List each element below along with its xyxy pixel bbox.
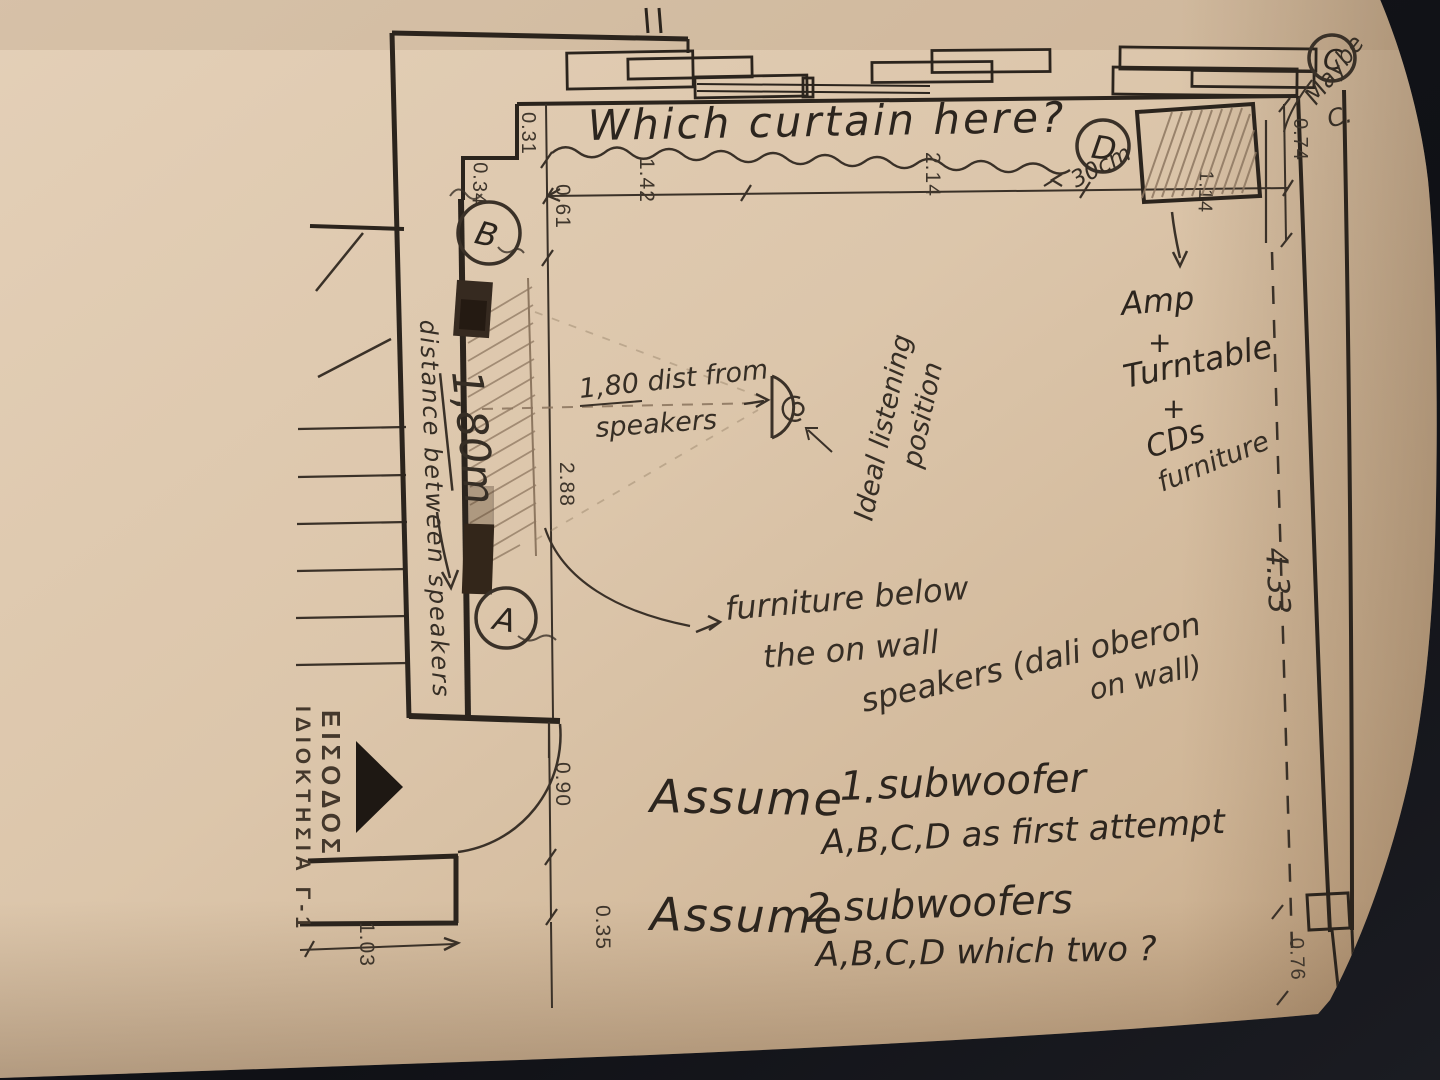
dim-0-90: 0.90 xyxy=(551,762,574,807)
dim-0-35: 0.35 xyxy=(591,905,614,950)
dim-0-76: 0.76 xyxy=(1285,937,1308,981)
assume2-qty: 2 subwoofers xyxy=(805,877,1074,932)
dim-2-14: 2.14 xyxy=(921,152,944,197)
dim-0-61: 0.61 xyxy=(551,184,574,229)
dim-1-03: 1.03 xyxy=(355,922,378,967)
dim-2-88: 2.88 xyxy=(555,462,578,507)
dim-4-33: 4.33 xyxy=(1258,547,1296,616)
entrance-label-1: ΕΙΣΟΔΟΣ xyxy=(316,710,346,859)
speaker-bottom xyxy=(462,523,494,594)
dim-1-42: 1.42 xyxy=(635,158,658,203)
assume2-detail: A,B,C,D which two ? xyxy=(813,929,1157,975)
photo-of-floorplan: 0.31 0.34 0.61 1.42 2.14 0.74 1.14 2.88 … xyxy=(0,0,1440,1080)
curtain-question: Which curtain here? xyxy=(587,93,1066,150)
floorplan-sketch: 0.31 0.34 0.61 1.42 2.14 0.74 1.14 2.88 … xyxy=(0,0,1440,1080)
dim-0-74: 0.74 xyxy=(1289,118,1311,161)
assume1-qty: 1 subwoofer xyxy=(839,755,1090,810)
dim-0-31: 0.31 xyxy=(517,112,539,155)
amp-line1: Amp xyxy=(1117,279,1195,323)
entrance-label-2: ΙΔΙΟΚΤΗΣΙΑ Γ-1 xyxy=(291,706,314,933)
